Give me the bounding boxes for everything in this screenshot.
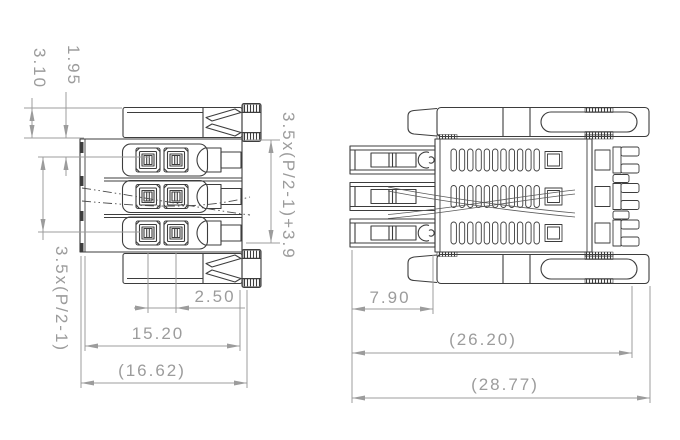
latch-arm-bottom — [408, 255, 649, 284]
dimensions: 3.10 1.95 3.5x(P/2-1) 3.5x(P/2-1)+3.9 2.… — [24, 45, 650, 403]
latch-arm-top — [408, 108, 649, 137]
pin — [350, 219, 435, 247]
technical-drawing-canvas: 3.10 1.95 3.5x(P/2-1) 3.5x(P/2-1)+3.9 2.… — [0, 0, 680, 440]
connector-drawing: 3.10 1.95 3.5x(P/2-1) 3.5x(P/2-1)+3.9 2.… — [0, 0, 680, 440]
dim-body-width-label: 15.20 — [132, 324, 185, 343]
terminal-row — [123, 217, 242, 249]
slot-row — [451, 220, 639, 246]
pin — [350, 146, 435, 174]
latch-bar-top — [123, 104, 261, 142]
slot-row — [451, 147, 639, 173]
latch-bar-bottom — [123, 250, 261, 288]
dim-row-span-plus-label: 3.5x(P/2-1)+3.9 — [279, 112, 298, 260]
dim-contact-pitch-label: 2.50 — [194, 287, 235, 306]
pin — [350, 183, 435, 211]
front-body — [80, 139, 242, 252]
dim-body-length-label: (26.20) — [449, 330, 517, 349]
dim-overall-width-label: (16.62) — [118, 361, 186, 380]
front-view — [80, 104, 261, 288]
dim-top-to-row1-label: 1.95 — [64, 45, 83, 86]
terminal-row — [123, 144, 242, 176]
side-view — [350, 108, 649, 284]
terminal-row — [123, 181, 242, 213]
side-body — [435, 139, 592, 252]
break-line — [82, 188, 250, 215]
dim-overall-length-label: (28.77) — [471, 375, 539, 394]
slot-row — [451, 184, 639, 210]
dim-row-span-label: 3.5x(P/2-1) — [52, 246, 71, 352]
dim-pin-length-label: 7.90 — [369, 288, 410, 307]
dim-bar-height-label: 3.10 — [30, 48, 49, 89]
